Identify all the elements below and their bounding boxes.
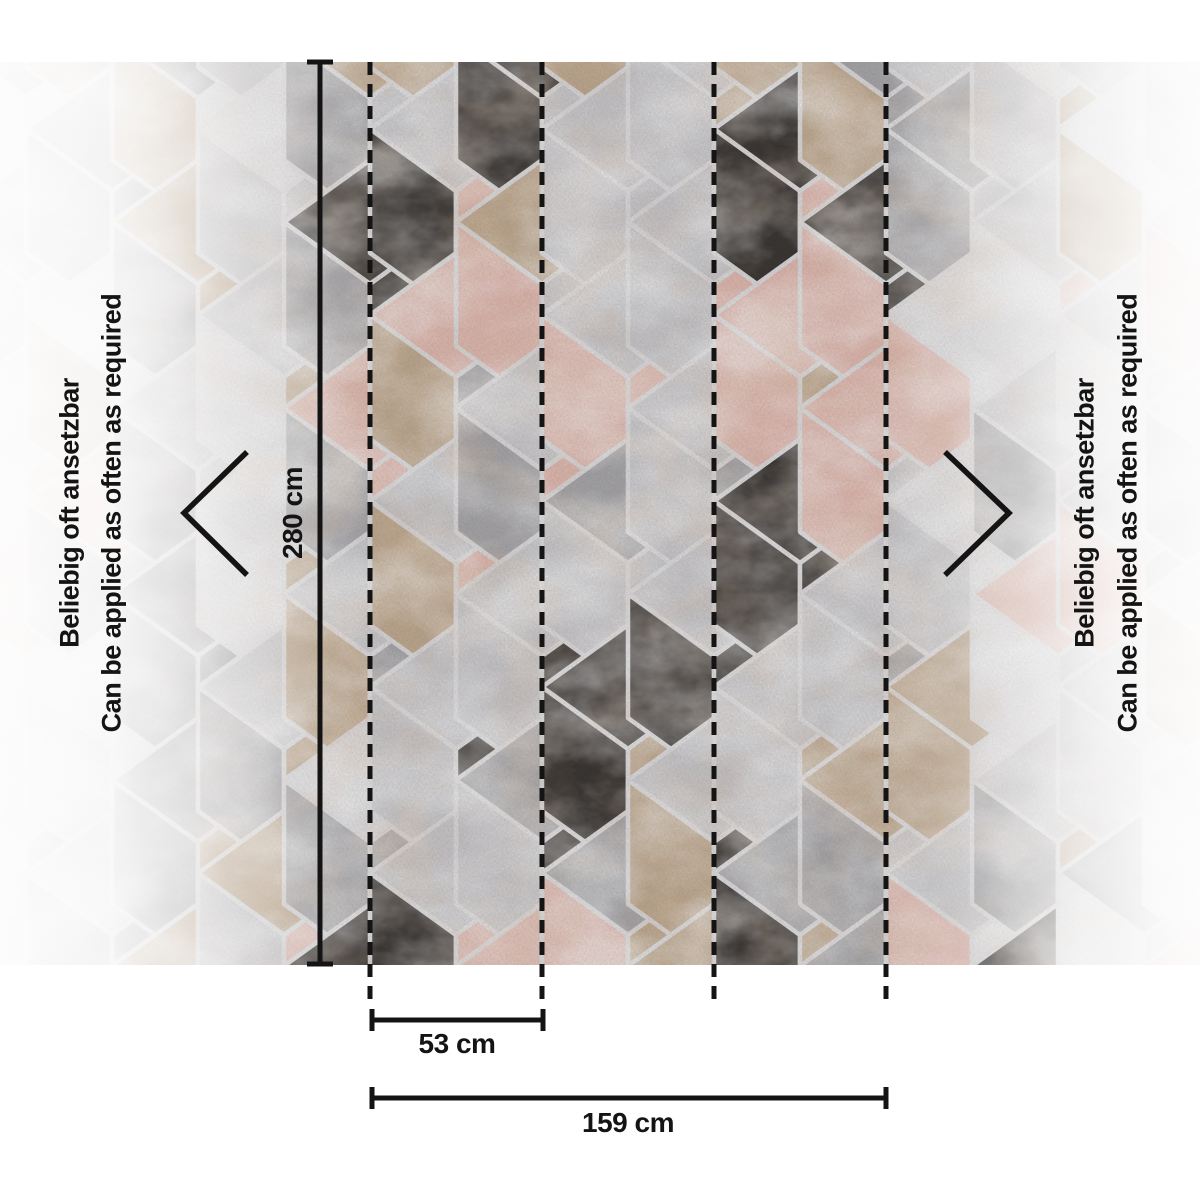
wallpaper-dimension-diagram: 280 cm 53 cm 159 cm Beliebig oft ansetzb… <box>0 0 1200 1200</box>
side-note-german-left: Beliebig oft ansetzbar <box>57 378 84 648</box>
wallpaper-pattern-svg <box>0 0 1200 1200</box>
repeat-dimension-label: 53 cm <box>419 1030 496 1058</box>
side-note-german-right: Beliebig oft ansetzbar <box>1072 378 1099 648</box>
right-fade <box>886 62 1200 965</box>
side-note-english-right: Can be applied as often as required <box>1115 294 1142 733</box>
width-dimension-label: 159 cm <box>582 1109 674 1137</box>
height-dimension-label: 280 cm <box>279 467 307 559</box>
side-note-english-left: Can be applied as often as required <box>99 294 126 733</box>
